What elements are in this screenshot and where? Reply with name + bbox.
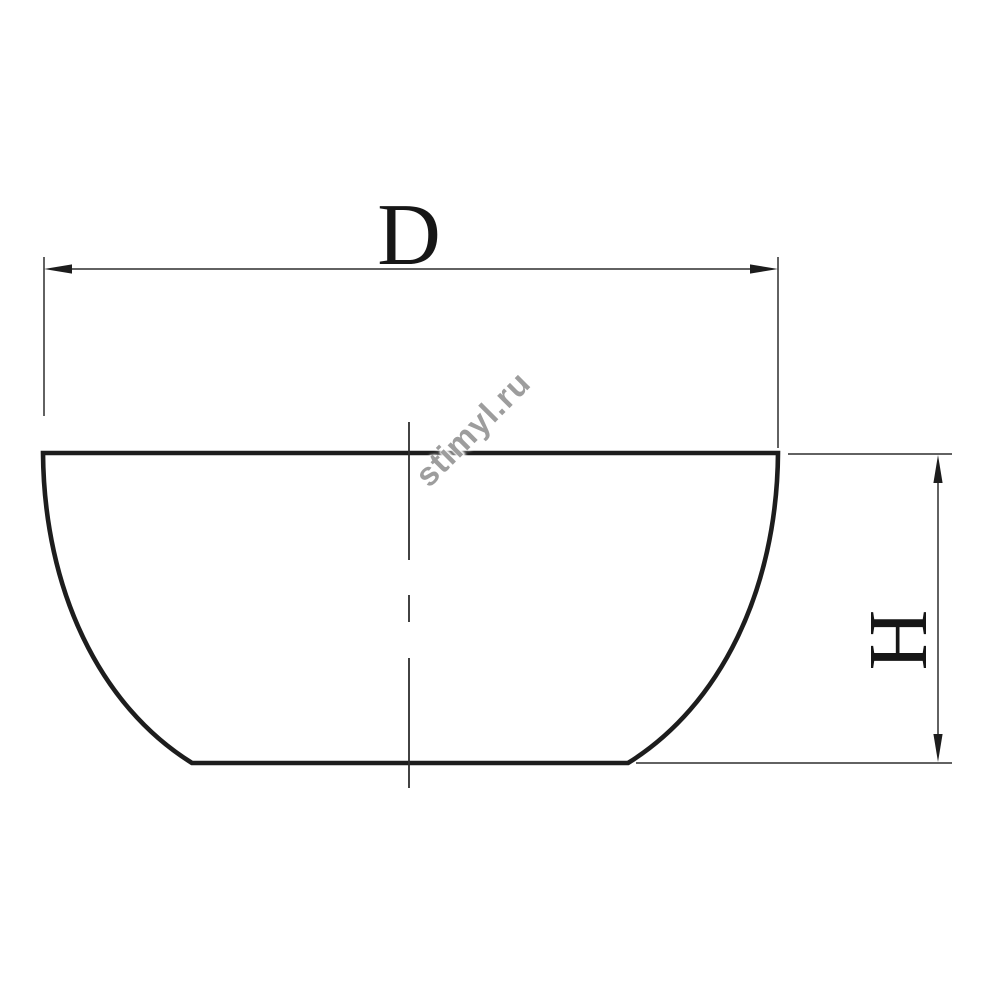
arrow-down-icon	[933, 734, 942, 762]
bowl-outline	[43, 453, 778, 763]
arrow-right-icon	[750, 264, 778, 273]
technical-drawing-canvas: D H stimyl.ru	[0, 0, 1000, 1000]
arrow-left-icon	[44, 264, 72, 273]
diameter-label: D	[377, 192, 441, 280]
arrow-up-icon	[933, 455, 942, 483]
drawing-svg	[0, 0, 1000, 1000]
height-label: H	[857, 610, 941, 671]
